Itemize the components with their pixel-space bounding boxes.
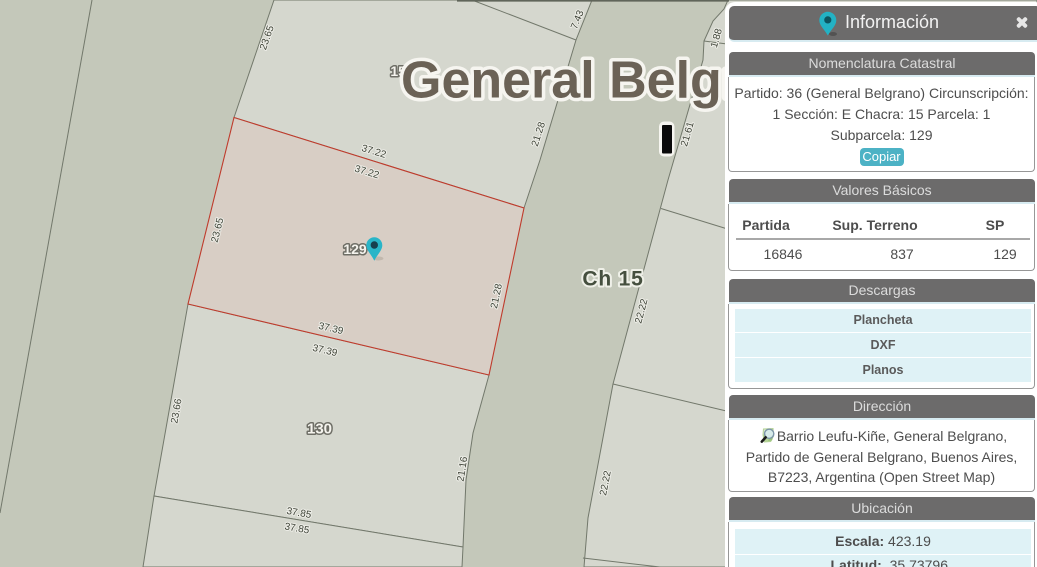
svg-text:129: 129 <box>343 241 367 257</box>
svg-text:Ch 15: Ch 15 <box>582 268 643 291</box>
svg-text:130: 130 <box>307 421 332 438</box>
